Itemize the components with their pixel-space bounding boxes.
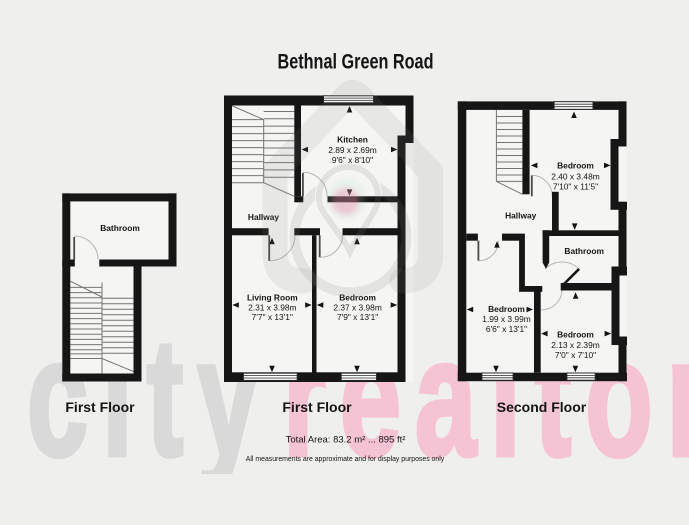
svg-text:2.13 x 2.39m: 2.13 x 2.39m <box>551 340 599 350</box>
svg-text:Total Area: 83.2 m² ... 895 ft: Total Area: 83.2 m² ... 895 ft² <box>286 434 406 445</box>
svg-text:7'9" x 13'1": 7'9" x 13'1" <box>337 312 378 322</box>
svg-text:2.31 x 3.98m: 2.31 x 3.98m <box>248 302 296 312</box>
svg-text:2.37 x 3.98m: 2.37 x 3.98m <box>333 302 381 312</box>
svg-text:Bedroom: Bedroom <box>557 330 594 340</box>
svg-text:Hallway: Hallway <box>505 210 537 220</box>
svg-text:9'6" x 8'10": 9'6" x 8'10" <box>332 155 373 165</box>
svg-text:Bedroom: Bedroom <box>488 304 525 314</box>
svg-text:7'10" x 11'5": 7'10" x 11'5" <box>553 182 598 192</box>
svg-text:1.99 x 3.99m: 1.99 x 3.99m <box>482 314 530 324</box>
svg-text:Bedroom: Bedroom <box>557 160 594 170</box>
svg-text:7'0" x 7'10": 7'0" x 7'10" <box>555 350 596 360</box>
svg-text:Living Room: Living Room <box>247 292 298 302</box>
svg-text:2.40 x 3.48m: 2.40 x 3.48m <box>551 171 599 181</box>
svg-text:Second Floor: Second Floor <box>497 399 587 415</box>
svg-text:2.89 x 2.69m: 2.89 x 2.69m <box>328 145 376 155</box>
svg-text:Bathroom: Bathroom <box>564 246 604 256</box>
svg-text:All measurements are approxima: All measurements are approximate and for… <box>246 456 445 463</box>
svg-text:Bathroom: Bathroom <box>100 223 140 233</box>
svg-text:Kitchen: Kitchen <box>337 135 368 145</box>
svg-text:First Floor: First Floor <box>282 399 352 415</box>
svg-text:7'7" x 13'1": 7'7" x 13'1" <box>252 312 293 322</box>
svg-text:6'6" x 13'1": 6'6" x 13'1" <box>486 324 527 334</box>
svg-text:Bethnal Green Road: Bethnal Green Road <box>278 51 434 74</box>
svg-text:First Floor: First Floor <box>65 399 135 415</box>
